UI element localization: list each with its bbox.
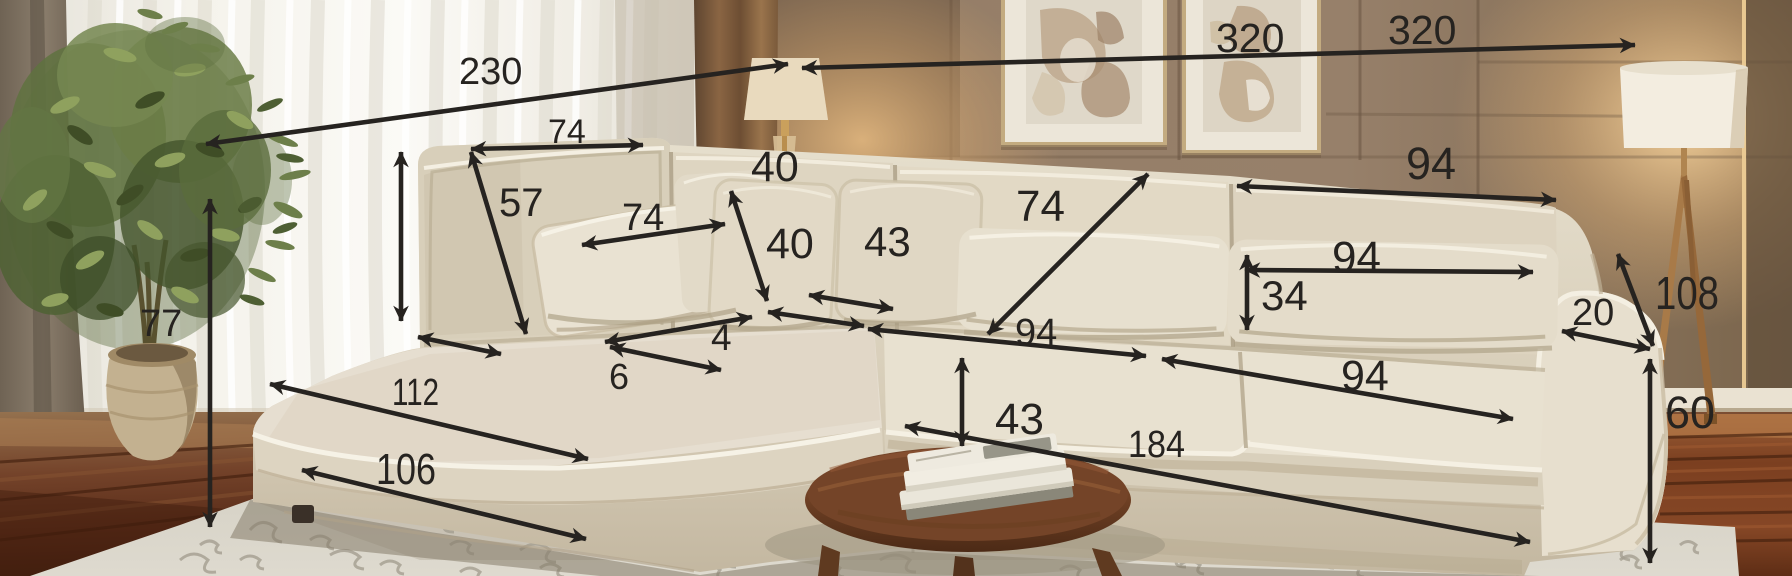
svg-text:320: 320 [1388, 7, 1456, 53]
svg-text:94: 94 [1332, 233, 1381, 282]
svg-text:94: 94 [1406, 138, 1456, 189]
svg-text:320: 320 [1216, 15, 1284, 61]
svg-text:43: 43 [864, 218, 911, 265]
svg-text:60: 60 [1665, 387, 1715, 438]
svg-text:106: 106 [376, 445, 436, 494]
svg-text:94: 94 [1015, 312, 1057, 354]
svg-text:57: 57 [499, 181, 544, 225]
svg-text:112: 112 [392, 372, 439, 414]
svg-text:108: 108 [1655, 267, 1719, 319]
svg-text:74: 74 [622, 197, 664, 239]
svg-text:20: 20 [1572, 292, 1614, 334]
svg-text:40: 40 [766, 220, 814, 268]
svg-text:6: 6 [609, 356, 629, 397]
svg-text:34: 34 [1261, 272, 1308, 319]
svg-text:230: 230 [459, 51, 522, 93]
svg-text:184: 184 [1128, 424, 1185, 466]
svg-text:40: 40 [751, 143, 799, 191]
svg-text:77: 77 [140, 303, 182, 345]
svg-text:74: 74 [548, 113, 586, 151]
svg-text:43: 43 [995, 395, 1044, 444]
svg-text:4: 4 [711, 317, 732, 358]
svg-text:94: 94 [1341, 352, 1389, 400]
svg-text:74: 74 [1016, 182, 1065, 231]
